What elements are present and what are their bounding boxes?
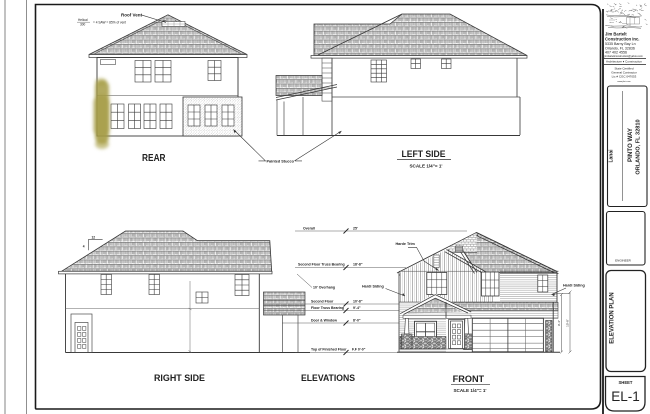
svg-text:25': 25'	[353, 227, 358, 231]
svg-text:Overall: Overall	[303, 227, 315, 231]
svg-text:FRONT: FRONT	[453, 374, 485, 384]
svg-text:Lanai: Lanai	[609, 149, 615, 163]
svg-text:REAR: REAR	[142, 153, 166, 164]
svg-text:Helical: Helical	[78, 18, 88, 22]
svg-text:Second Floor: Second Floor	[311, 300, 334, 304]
svg-text:SCALE 1/4"= 1': SCALE 1/4"= 1'	[409, 164, 442, 169]
svg-text:EL-1: EL-1	[611, 389, 640, 404]
svg-text:ELEVATIONS: ELEVATIONS	[301, 373, 355, 383]
svg-text:Harde Trim: Harde Trim	[396, 242, 416, 246]
svg-text:8'-0": 8'-0"	[353, 319, 361, 323]
svg-text:9'-4": 9'-4"	[557, 320, 561, 326]
svg-text:ELEVATION PLAN: ELEVATION PLAN	[610, 292, 616, 343]
svg-text:Top of Finished Floor: Top of Finished Floor	[311, 348, 347, 352]
svg-text:SHEET: SHEET	[619, 380, 633, 385]
svg-text:Painted Stucco: Painted Stucco	[267, 159, 295, 163]
svg-text:407 402 4556: 407 402 4556	[605, 51, 627, 55]
svg-text:Construction Inc.: Construction Inc.	[605, 37, 639, 42]
svg-text:300: 300	[80, 23, 86, 27]
svg-text:F.F 0'-0": F.F 0'-0"	[352, 348, 366, 352]
svg-text:ENGINEER: ENGINEER	[615, 259, 632, 263]
svg-text:Architecture ♦ Construction: Architecture ♦ Construction	[606, 60, 642, 64]
svg-text:18'-8": 18'-8"	[353, 263, 363, 267]
svg-text:Lic # CGC 047053: Lic # CGC 047053	[612, 75, 637, 79]
svg-text:Hardi Siding: Hardi Siding	[563, 284, 585, 288]
svg-text:PINTO WAY: PINTO WAY	[627, 127, 634, 162]
svg-text:jimbarteltconstruction@yahoo.c: jimbarteltconstruction@yahoo.com	[604, 55, 643, 58]
svg-text:RIGHT SIDE: RIGHT SIDE	[154, 373, 205, 383]
svg-text:Hardi Siding: Hardi Siding	[362, 285, 384, 289]
svg-text:www.jbci.com: www.jbci.com	[617, 81, 630, 83]
svg-text:LEFT SIDE: LEFT SIDE	[402, 149, 446, 159]
svg-text:9'-4": 9'-4"	[353, 306, 361, 310]
svg-text:4: 4	[83, 244, 85, 248]
svg-text:12: 12	[92, 236, 96, 240]
svg-text:Door & Window: Door & Window	[311, 319, 337, 323]
svg-text:10'-8": 10'-8"	[353, 300, 363, 304]
svg-text:Roof Vent: Roof Vent	[121, 12, 143, 17]
svg-text:Second Floor Truss Bearing: Second Floor Truss Bearing	[298, 263, 345, 267]
svg-text:= 4 SAW = 85% of vent: = 4 SAW = 85% of vent	[93, 21, 126, 25]
svg-text:10' Overhang: 10' Overhang	[313, 286, 335, 290]
svg-text:Floor Truss Bearing: Floor Truss Bearing	[311, 306, 344, 310]
svg-text:ORLANDO, FL 32810: ORLANDO, FL 32810	[636, 119, 642, 174]
svg-text:10'-8": 10'-8"	[566, 319, 570, 327]
svg-text:SCALE 1/4"= 1': SCALE 1/4"= 1'	[453, 388, 486, 393]
